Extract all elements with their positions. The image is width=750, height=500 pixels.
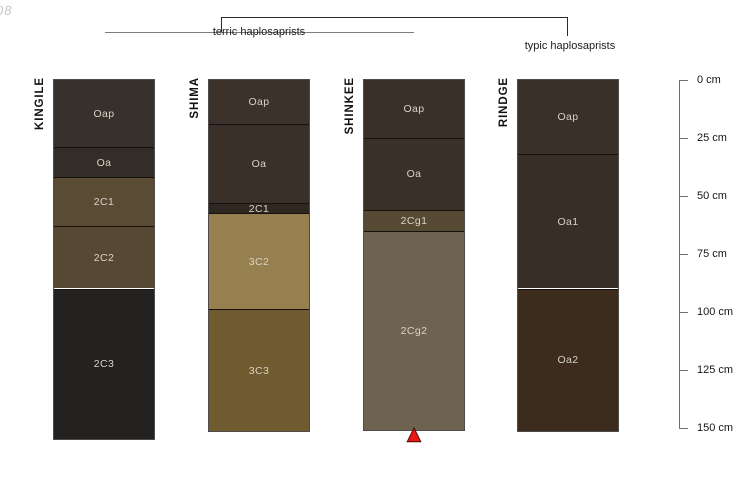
depth-tick-label-0: 0 cm	[697, 74, 721, 86]
horizon-label: Oap	[248, 97, 269, 107]
horizon-label: Oap	[403, 104, 424, 114]
depth-tick-label-75: 75 cm	[697, 248, 727, 260]
horizon-band-rindge-oap: Oap	[518, 80, 618, 154]
horizon-label: 2C1	[249, 204, 269, 214]
horizon-band-shima-2c1: 2C1	[209, 203, 309, 213]
depth-tick-label-150: 150 cm	[697, 422, 733, 434]
profile-column-kingile: OapOa2C12C22C3	[53, 79, 155, 440]
horizon-label: Oa2	[557, 355, 578, 365]
depth-tick-25	[679, 138, 688, 139]
horizon-band-shinkee-2cg2: 2Cg2	[364, 231, 464, 430]
horizon-label: Oap	[93, 109, 114, 119]
horizon-label: Oa1	[557, 217, 578, 227]
red-triangle-marker-icon	[406, 427, 422, 443]
bracket-top-line	[221, 17, 568, 18]
depth-tick-100	[679, 312, 688, 313]
horizon-band-shima-oa: Oa	[209, 124, 309, 203]
bracket-right-drop	[567, 17, 568, 36]
horizon-label: 2C1	[94, 197, 114, 207]
profile-name-label-rindge: RINDGE	[498, 77, 510, 127]
horizon-band-shima-3c3: 3C3	[209, 309, 309, 431]
horizon-label: 3C3	[249, 366, 269, 376]
horizon-band-kingile-2c3: 2C3	[54, 289, 154, 440]
depth-tick-label-125: 125 cm	[697, 364, 733, 376]
profile-column-shima: OapOa2C13C23C3	[208, 79, 310, 432]
group-label-typic: typic haplosaprists	[485, 40, 655, 52]
profile-name-label-shinkee: SHINKEE	[344, 77, 356, 134]
profile-column-rindge: OapOa1Oa2	[517, 79, 619, 432]
profile-column-shinkee: OapOa2Cg12Cg2	[363, 79, 465, 431]
horizon-band-rindge-oa1: Oa1	[518, 154, 618, 288]
figure-canvas: 08 terric haplosaprists typic haplosapri…	[0, 0, 750, 500]
depth-tick-150	[679, 428, 688, 429]
horizon-band-kingile-2c2: 2C2	[54, 226, 154, 289]
profile-name-label-kingile: KINGILE	[34, 77, 46, 130]
horizon-band-shinkee-2cg1: 2Cg1	[364, 210, 464, 231]
depth-tick-label-25: 25 cm	[697, 132, 727, 144]
horizon-band-shinkee-oa: Oa	[364, 138, 464, 210]
horizon-label: 2C2	[94, 253, 114, 263]
depth-tick-125	[679, 370, 688, 371]
horizon-label: Oa	[407, 169, 422, 179]
horizon-band-kingile-oap: Oap	[54, 80, 154, 147]
depth-tick-0	[679, 80, 688, 81]
depth-tick-50	[679, 196, 688, 197]
horizon-label: 3C2	[249, 257, 269, 267]
group-label-terric: terric haplosaprists	[174, 26, 344, 38]
horizon-band-shima-3c2: 3C2	[209, 213, 309, 309]
horizon-band-shima-oap: Oap	[209, 80, 309, 124]
depth-tick-label-50: 50 cm	[697, 190, 727, 202]
horizon-label: 2C3	[94, 359, 114, 369]
horizon-label: Oa	[97, 158, 112, 168]
watermark-text: 08	[0, 3, 12, 18]
depth-tick-label-100: 100 cm	[697, 306, 733, 318]
horizon-label: Oap	[557, 112, 578, 122]
horizon-label: Oa	[252, 159, 267, 169]
horizon-label: 2Cg2	[401, 326, 428, 336]
horizon-band-kingile-2c1: 2C1	[54, 177, 154, 226]
profile-name-label-shima: SHIMA	[189, 77, 201, 119]
horizon-band-kingile-oa: Oa	[54, 147, 154, 177]
horizon-band-rindge-oa2: Oa2	[518, 289, 618, 431]
depth-tick-75	[679, 254, 688, 255]
horizon-label: 2Cg1	[401, 216, 428, 226]
horizon-band-shinkee-oap: Oap	[364, 80, 464, 138]
